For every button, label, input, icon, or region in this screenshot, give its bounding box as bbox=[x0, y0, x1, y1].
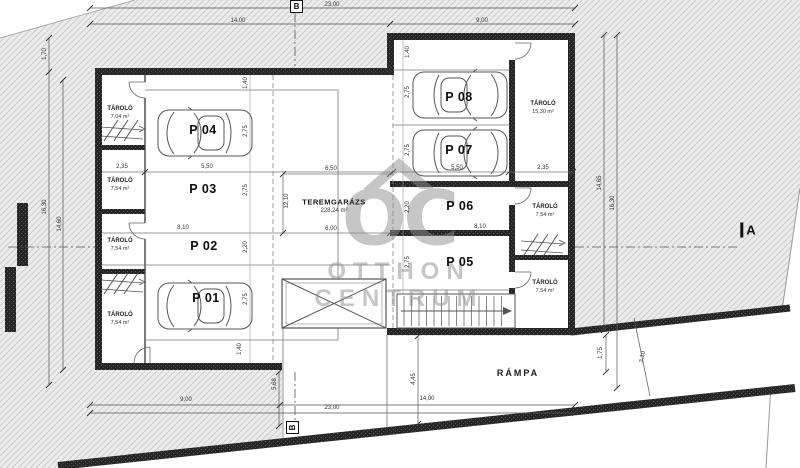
dim-left-235: 2,35 bbox=[116, 164, 128, 170]
parking-label-p01: P 01 bbox=[192, 291, 220, 305]
storage-1-area: 7,04 m² bbox=[111, 114, 130, 120]
dim-r275b: 2,75 bbox=[405, 144, 411, 156]
dim-right-810: 8,10 bbox=[474, 224, 486, 230]
dim-r140: 1,40 bbox=[405, 46, 411, 58]
section-marker-a: A bbox=[740, 223, 755, 238]
dim-top-9: 9,00 bbox=[476, 18, 488, 24]
parking-label-p03: P 03 bbox=[189, 182, 217, 196]
hall-name: TEREMGARÁZS bbox=[302, 198, 365, 207]
dim-right-235: 2,35 bbox=[537, 165, 549, 171]
storage-4-area: 7,54 m² bbox=[111, 320, 130, 326]
storage-6-area: 7,54 m² bbox=[536, 212, 555, 218]
storage-2-name: TÁROLÓ bbox=[107, 178, 132, 184]
storage-3-name: TÁROLÓ bbox=[107, 238, 132, 244]
dim-left-1460: 14,60 bbox=[57, 216, 63, 231]
dim-l275b: 2,75 bbox=[243, 184, 249, 196]
section-marker-b-top: B bbox=[290, 0, 303, 13]
dim-center-600: 6,00 bbox=[325, 226, 337, 232]
parking-label-p08: P 08 bbox=[445, 90, 473, 104]
dim-r275a: 2,75 bbox=[405, 86, 411, 98]
dim-c1210: 12,10 bbox=[284, 193, 290, 208]
dim-bottom-445: 4,45 bbox=[411, 373, 417, 385]
dim-l275a: 2,75 bbox=[243, 125, 249, 137]
dim-left-1630: 16,30 bbox=[42, 199, 48, 214]
dim-l140b: 1,40 bbox=[237, 343, 243, 355]
storage-6-name: TÁROLÓ bbox=[532, 204, 557, 210]
section-marker-b-bottom: B bbox=[286, 421, 299, 434]
storage-2-area: 7,54 m² bbox=[111, 186, 130, 192]
dim-l220: 2,20 bbox=[243, 241, 249, 253]
dim-center-650: 6,50 bbox=[325, 166, 337, 172]
dim-r275c: 2,75 bbox=[405, 256, 411, 268]
storage-5-area: 15,30 m² bbox=[532, 109, 554, 115]
dim-top-23: 23,00 bbox=[324, 2, 339, 8]
dim-left-170: 1,70 bbox=[42, 48, 48, 60]
dim-bottom-23: 23,00 bbox=[324, 405, 339, 411]
dim-left-550: 5,50 bbox=[201, 164, 213, 170]
dim-right-1630: 16,30 bbox=[610, 195, 616, 210]
storage-7-name: TÁROLÓ bbox=[532, 280, 557, 286]
parking-label-p02: P 02 bbox=[190, 239, 218, 253]
dim-right-550: 5,50 bbox=[451, 165, 463, 171]
plan-labels: B B A P 01 P 02 P 03 P 04 P 05 P 06 P 07… bbox=[0, 0, 800, 468]
dim-l275c: 2,75 bbox=[243, 293, 249, 305]
parking-label-p07: P 07 bbox=[445, 143, 473, 157]
dim-left-810: 8,10 bbox=[177, 225, 189, 231]
dim-bottom-14: 14,00 bbox=[419, 396, 434, 402]
storage-7-area: 7,54 m² bbox=[536, 288, 555, 294]
dim-right-1465: 14,65 bbox=[597, 175, 603, 190]
dim-l140a: 1,40 bbox=[243, 77, 249, 89]
dim-r220: 2,20 bbox=[405, 201, 411, 213]
dim-top-14: 14,00 bbox=[230, 18, 245, 24]
parking-label-p06: P 06 bbox=[446, 199, 474, 213]
parking-label-p05: P 05 bbox=[446, 255, 474, 269]
storage-5-name: TÁROLÓ bbox=[530, 101, 555, 107]
floor-plan: OC OTTHON CENTRUM B B A P 01 P 02 P 03 P… bbox=[0, 0, 800, 468]
dim-right-175: 1,75 bbox=[598, 347, 604, 359]
dim-bottom-568: 5,68 bbox=[272, 378, 278, 390]
storage-3-area: 7,54 m² bbox=[111, 246, 130, 252]
ramp-label: RÁMPA bbox=[497, 368, 539, 378]
storage-1-name: TÁROLÓ bbox=[107, 106, 132, 112]
dim-bottom-9: 9,00 bbox=[180, 397, 192, 403]
hall-area: 228,24 m² bbox=[320, 208, 347, 214]
storage-4-name: TÁROLÓ bbox=[107, 312, 132, 318]
parking-label-p04: P 04 bbox=[189, 123, 217, 137]
dim-right-310: 3,10 bbox=[639, 351, 647, 364]
